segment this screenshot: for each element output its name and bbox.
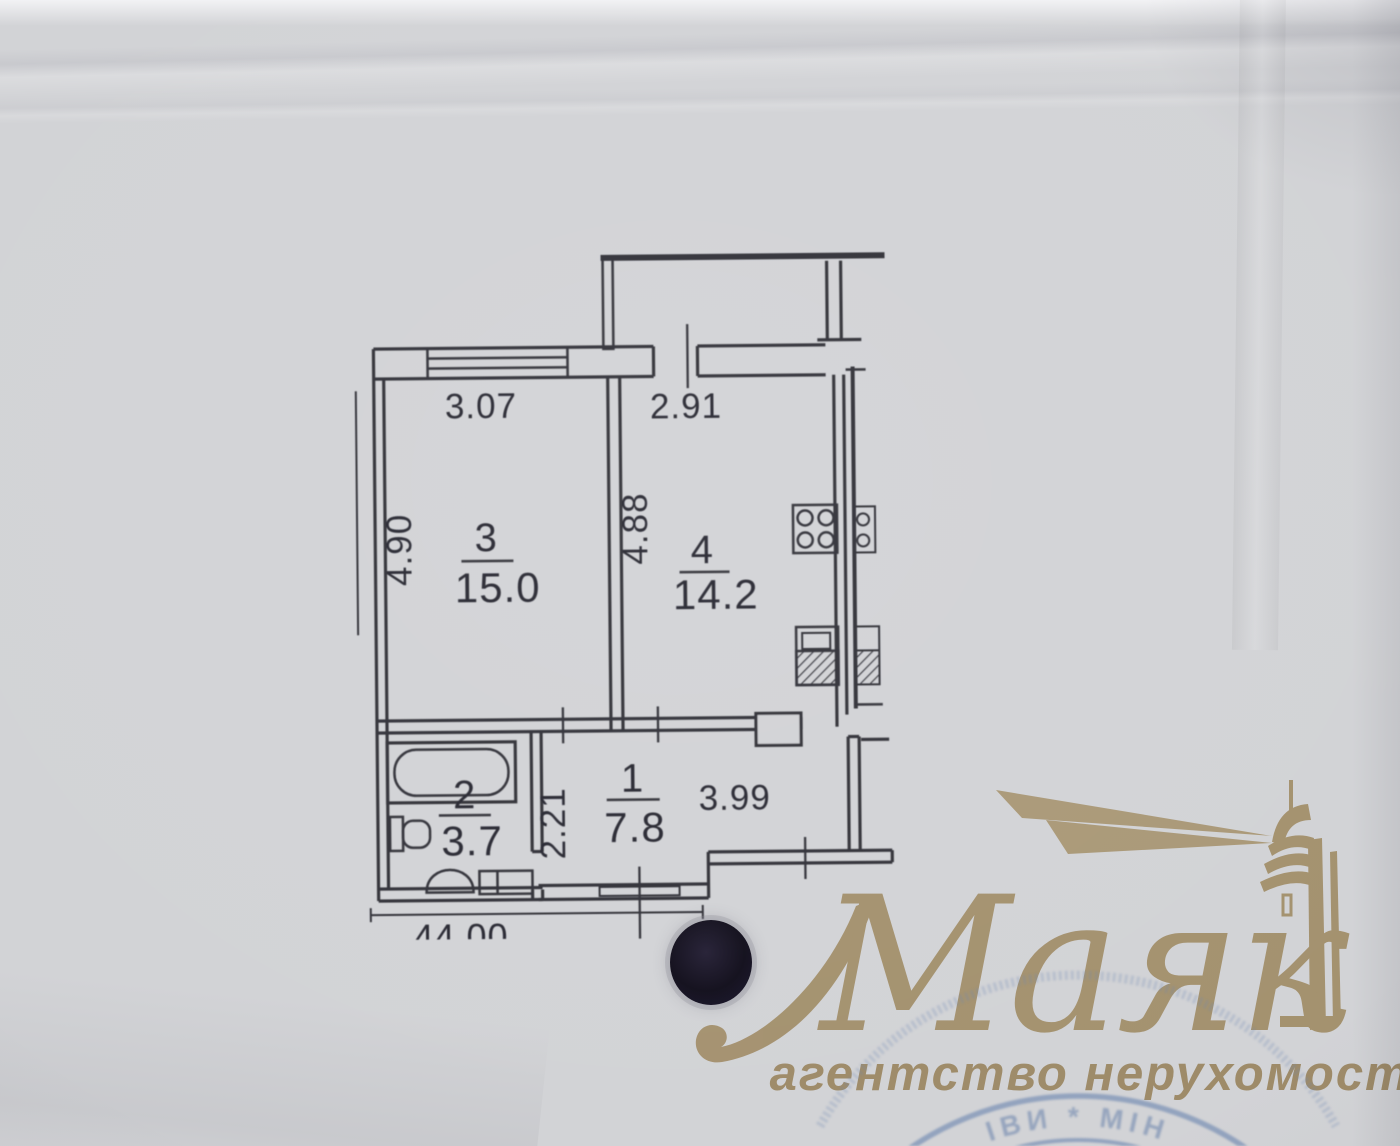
stamp-inner-ring xyxy=(826,1140,1330,1146)
hole-punch xyxy=(670,920,752,1005)
scanned-floor-plan-page: 3.07 2.91 4.90 4.88 2.21 3.99 3 15.0 4 1… xyxy=(0,0,1400,1146)
